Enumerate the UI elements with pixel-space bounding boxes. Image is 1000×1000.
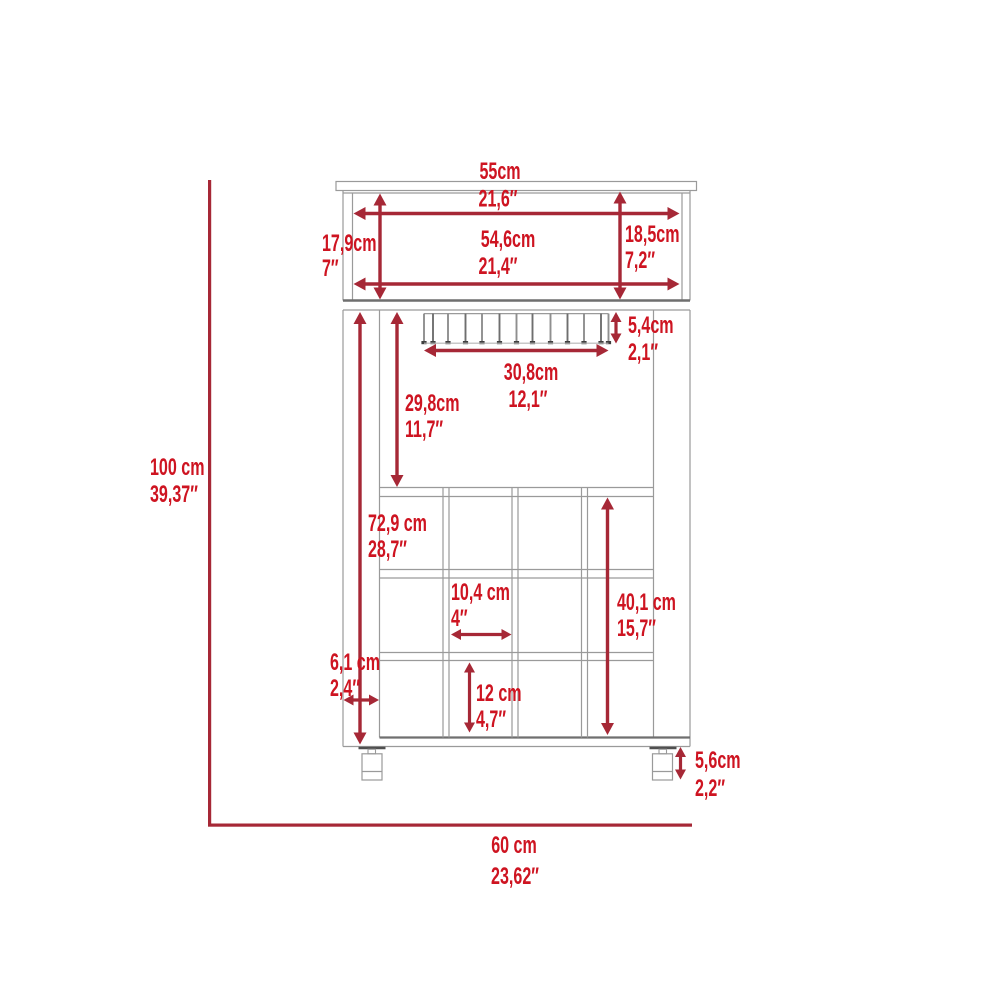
svg-text:6,1 cm: 6,1 cm bbox=[330, 650, 380, 676]
svg-text:40,1 cm: 40,1 cm bbox=[617, 590, 676, 616]
svg-text:12,1″: 12,1″ bbox=[509, 387, 548, 413]
svg-text:7,2″: 7,2″ bbox=[625, 248, 655, 274]
svg-text:21,6″: 21,6″ bbox=[479, 187, 518, 213]
svg-text:15,7″: 15,7″ bbox=[617, 616, 656, 642]
svg-text:29,8cm: 29,8cm bbox=[405, 391, 459, 417]
svg-text:5,4cm: 5,4cm bbox=[628, 313, 674, 339]
svg-text:18,5cm: 18,5cm bbox=[625, 222, 679, 248]
svg-text:55cm: 55cm bbox=[479, 159, 520, 185]
svg-text:2,2″: 2,2″ bbox=[695, 776, 725, 802]
svg-text:5,6cm: 5,6cm bbox=[695, 748, 741, 774]
svg-text:7″: 7″ bbox=[322, 256, 339, 282]
svg-text:100 cm: 100 cm bbox=[150, 455, 204, 481]
svg-text:72,9 cm: 72,9 cm bbox=[368, 511, 427, 537]
svg-text:17,9cm: 17,9cm bbox=[322, 231, 376, 257]
svg-text:54,6cm: 54,6cm bbox=[481, 227, 535, 253]
svg-text:4,7″: 4,7″ bbox=[476, 707, 506, 733]
svg-text:10,4 cm: 10,4 cm bbox=[451, 580, 510, 606]
svg-text:12 cm: 12 cm bbox=[476, 681, 522, 707]
svg-text:4″: 4″ bbox=[451, 606, 468, 632]
svg-text:11,7″: 11,7″ bbox=[405, 417, 443, 443]
svg-text:39,37″: 39,37″ bbox=[150, 482, 198, 508]
svg-text:2,4″: 2,4″ bbox=[330, 676, 360, 702]
svg-text:30,8cm: 30,8cm bbox=[504, 360, 558, 386]
svg-text:60 cm: 60 cm bbox=[491, 833, 537, 859]
svg-text:23,62″: 23,62″ bbox=[491, 864, 539, 890]
svg-text:21,4″: 21,4″ bbox=[479, 254, 518, 280]
svg-text:28,7″: 28,7″ bbox=[368, 537, 407, 563]
svg-text:2,1″: 2,1″ bbox=[628, 340, 658, 366]
